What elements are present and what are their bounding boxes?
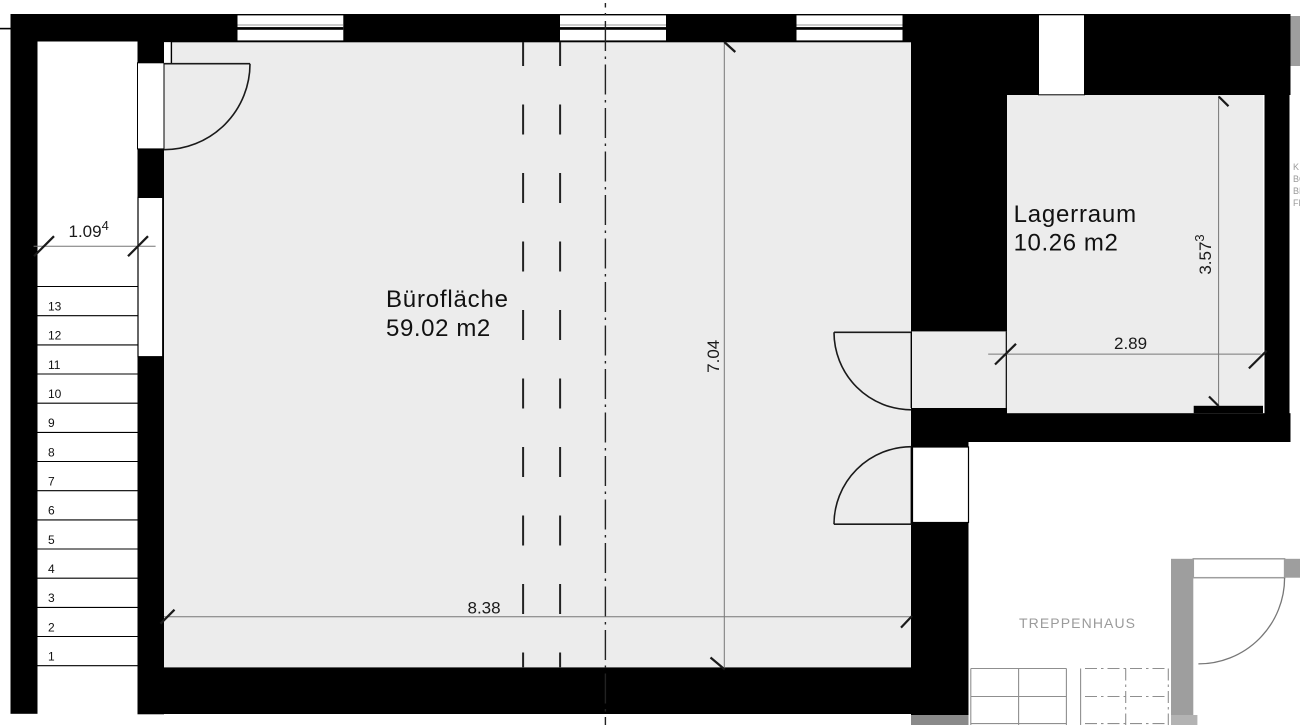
svg-text:6: 6	[48, 504, 55, 518]
svg-text:4: 4	[48, 562, 55, 576]
svg-text:FF: FF	[1293, 198, 1300, 208]
svg-text:10: 10	[48, 387, 62, 401]
svg-text:BF: BF	[1293, 186, 1300, 196]
svg-text:2: 2	[48, 620, 55, 634]
svg-text:10.26 m2: 10.26 m2	[1014, 230, 1119, 257]
svg-text:11: 11	[48, 358, 61, 372]
svg-text:Lagerraum: Lagerraum	[1014, 201, 1137, 228]
svg-text:5: 5	[48, 533, 55, 547]
svg-text:59.02 m2: 59.02 m2	[386, 315, 491, 342]
svg-text:7: 7	[48, 475, 55, 489]
svg-text:Bürofläche: Bürofläche	[386, 286, 509, 313]
svg-text:8.38: 8.38	[468, 599, 501, 618]
svg-text:3: 3	[48, 591, 55, 605]
svg-text:K: K	[1293, 162, 1299, 172]
svg-text:TREPPENHAUS: TREPPENHAUS	[1019, 615, 1136, 631]
svg-text:9: 9	[48, 416, 55, 430]
svg-text:1: 1	[48, 650, 55, 664]
svg-text:7.04: 7.04	[704, 340, 723, 373]
svg-text:12: 12	[48, 329, 62, 343]
svg-text:8: 8	[48, 445, 55, 459]
svg-text:BO: BO	[1293, 174, 1300, 184]
svg-text:13: 13	[48, 300, 62, 314]
svg-text:2.89: 2.89	[1114, 334, 1147, 353]
